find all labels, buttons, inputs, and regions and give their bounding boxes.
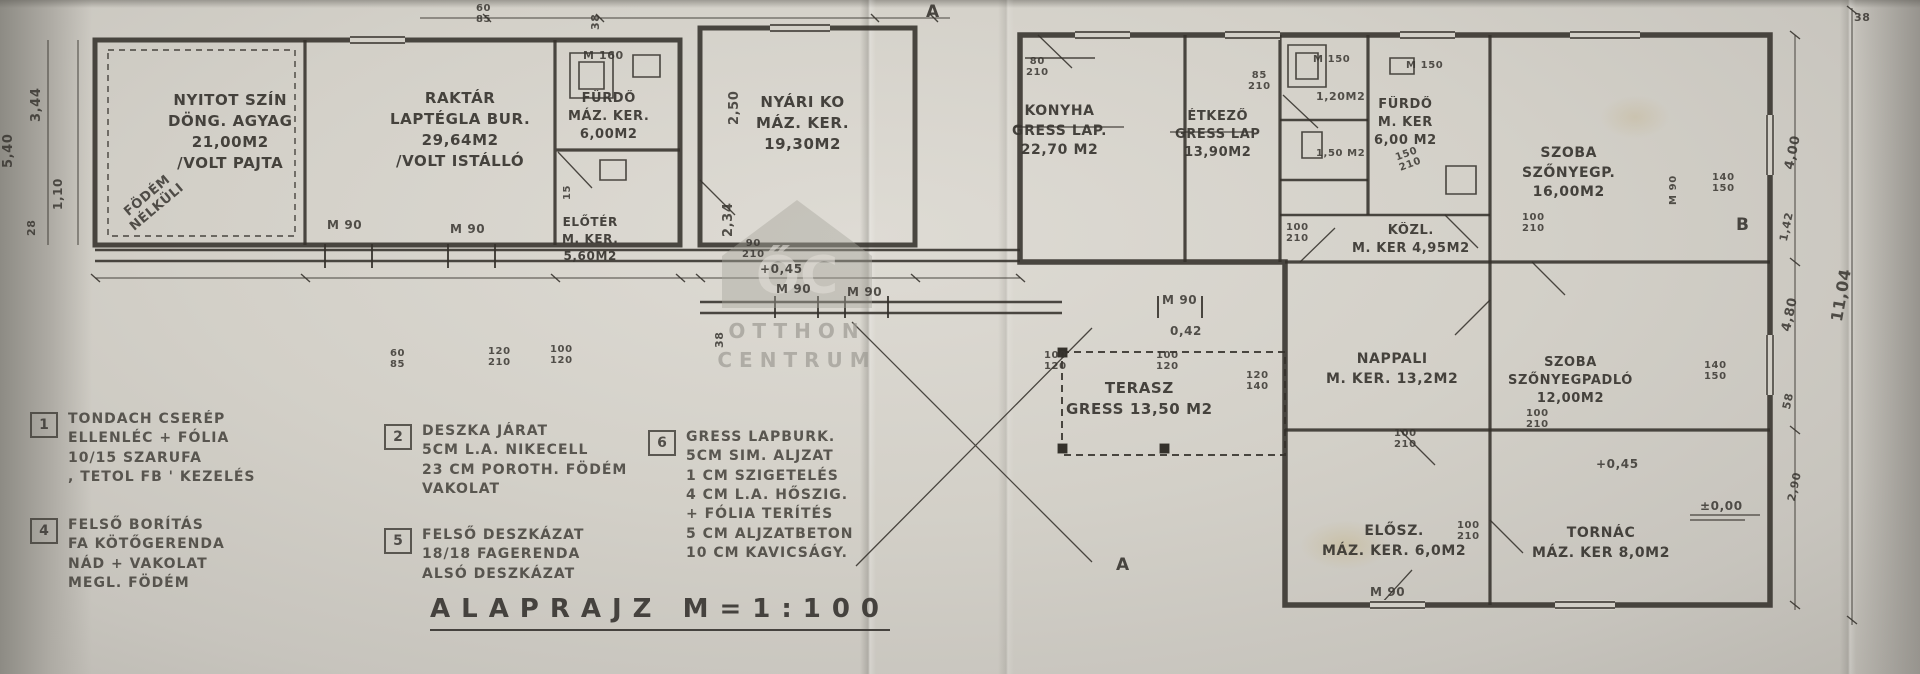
dimension-label: 120 140: [1246, 370, 1269, 392]
dimension-label: 60 85: [476, 3, 491, 25]
dimension-label: M 90: [776, 283, 811, 296]
section-marker: A: [926, 1, 940, 25]
legend-item: 4 FELSŐ BORÍTÁS FA KÖTŐGERENDA NÁD + VAK…: [30, 516, 225, 593]
legend-item: 2 DESZKA JÁRAT 5CM L.A. NIKECELL 23 CM P…: [384, 422, 627, 499]
legend-number-box: 4: [30, 518, 58, 544]
legend-item: 5 FELSŐ DESZKÁZAT 18/18 FAGERENDA ALSÓ D…: [384, 526, 584, 584]
dimension-label: 38: [590, 13, 602, 30]
room-label: KONYHA GRESS LAP. 22,70 M2: [1012, 102, 1107, 161]
dimension-label: M 90: [1370, 586, 1405, 599]
legend-number-box: 6: [648, 430, 676, 456]
room-label: FÜRDŐ M. KER 6,00 M2: [1374, 96, 1437, 151]
legend-text: FELSŐ BORÍTÁS FA KÖTŐGERENDA NÁD + VAKOL…: [68, 516, 225, 593]
room-label: TERASZ GRESS 13,50 M2: [1066, 378, 1213, 420]
legend-text: FELSŐ DESZKÁZAT 18/18 FAGERENDA ALSÓ DES…: [422, 526, 584, 584]
room-label: TORNÁC MÁZ. KER 8,0M2: [1532, 524, 1670, 563]
dimension-label: 100 210: [1526, 408, 1549, 430]
dimension-label: 100 210: [1457, 520, 1480, 542]
dimension-label: 1,50 M2: [1316, 148, 1365, 159]
dimension-label: M 150: [1313, 54, 1350, 65]
scanned-floorplan-page: ŐC OTTHON CENTRUM NYITOT SZÍN DÖNG. AGYA…: [0, 0, 1920, 674]
dimension-label: M 90: [1668, 175, 1679, 205]
section-marker: A: [1116, 554, 1130, 578]
dimension-label: 100 120: [550, 344, 573, 366]
legend-number-box: 5: [384, 528, 412, 554]
room-label: NYÁRI KO MÁZ. KER. 19,30M2: [756, 92, 849, 155]
room-label: SZOBA SZŐNYEGPADLÓ 12,00M2: [1508, 354, 1633, 409]
room-label: RAKTÁR LAPTÉGLA BUR. 29,64M2 /VOLT ISTÁL…: [390, 88, 530, 172]
dimension-label: 100 210: [1522, 212, 1545, 234]
legend-text: DESZKA JÁRAT 5CM L.A. NIKECELL 23 CM POR…: [422, 422, 627, 499]
room-label: NAPPALI M. KER. 13,2M2: [1326, 350, 1458, 389]
room-label: ELŐSZ. MÁZ. KER. 6,0M2: [1322, 522, 1466, 561]
dimension-label: +0,45: [760, 263, 803, 276]
dimension-label: 80 210: [1026, 56, 1049, 78]
dimension-label: 5,40: [2, 134, 17, 168]
legend-number-box: 2: [384, 424, 412, 450]
legend-item: 1 TONDACH CSERÉP ELLENLÉC + FÓLIA 10/15 …: [30, 410, 256, 487]
room-label: ÉTKEZŐ GRESS LAP 13,90M2: [1175, 108, 1261, 163]
room-label: ELŐTÉR M. KER. 5,60M2: [562, 214, 618, 264]
dimension-label: 90 210: [742, 238, 765, 260]
legend-item: 6 GRESS LAPBURK. 5CM SIM. ALJZAT 1 CM SZ…: [648, 428, 854, 563]
dimension-label: M 90: [450, 223, 485, 236]
dimension-label: +0,45: [1596, 458, 1639, 471]
dimension-label: 15: [562, 185, 573, 200]
dimension-label: 2,34: [722, 203, 737, 237]
dimension-label: ±0,00: [1700, 500, 1743, 513]
dimension-label: 38: [714, 331, 726, 348]
dimension-label: 1,10: [52, 178, 65, 210]
dimension-label: 28: [26, 219, 38, 236]
room-label: SZOBA SZŐNYEGP. 16,00M2: [1522, 144, 1615, 203]
dimension-label: 85 210: [1248, 70, 1271, 92]
dimension-label: 120 210: [488, 346, 511, 368]
room-label: NYITOT SZÍN DÖNG. AGYAG 21,00M2 /VOLT PA…: [168, 90, 293, 174]
dimension-label: 100 120: [1044, 350, 1067, 372]
dimension-label: 100 120: [1156, 350, 1179, 372]
dimension-label: 2,50: [728, 91, 743, 125]
dimension-label: M 90: [847, 286, 882, 299]
legend-text: TONDACH CSERÉP ELLENLÉC + FÓLIA 10/15 SZ…: [68, 410, 256, 487]
dimension-label: 60 85: [390, 348, 405, 370]
dimension-label: 100 210: [1286, 222, 1309, 244]
dimension-label: 140 150: [1704, 360, 1727, 382]
legend-text: GRESS LAPBURK. 5CM SIM. ALJZAT 1 CM SZIG…: [686, 428, 854, 563]
legend-number-box: 1: [30, 412, 58, 438]
dimension-label: M 90: [327, 219, 362, 232]
dimension-label: 1,20M2: [1316, 91, 1365, 103]
dimension-label: 140 150: [1712, 172, 1735, 194]
room-label: FÜRDŐ MÁZ. KER. 6,00M2: [568, 90, 649, 145]
room-label: KÖZL. M. KER 4,95M2: [1352, 222, 1470, 258]
dimension-label: M 90: [1162, 294, 1197, 307]
section-marker: B: [1736, 214, 1750, 238]
dimension-label: 3,44: [30, 88, 45, 122]
dimension-label: 0,42: [1170, 325, 1202, 338]
drawing-title: ALAPRAJZ M=1:100: [430, 594, 890, 631]
dimension-label: 38: [1854, 12, 1871, 24]
dimension-label: M 150: [1406, 60, 1443, 71]
dimension-label: M 160: [583, 50, 624, 62]
dimension-label: 100 210: [1394, 428, 1417, 450]
